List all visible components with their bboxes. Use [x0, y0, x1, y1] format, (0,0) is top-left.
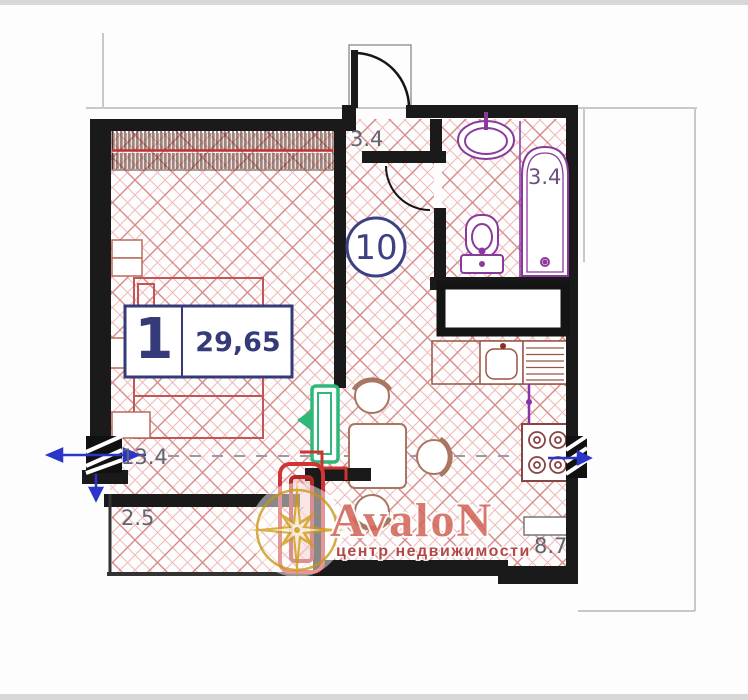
balcony-dim-label: 2.5: [121, 506, 154, 530]
page-top-border: [0, 0, 748, 5]
wall-bedroom-top: [100, 119, 346, 131]
watermark-tagline-text: центр недвижимости: [336, 543, 531, 560]
wall-kitchen-bottom-right: [498, 566, 578, 584]
vent-shaft-box: [441, 285, 565, 332]
watermark-brand-text: AvaloN: [330, 494, 493, 547]
wall-left-exterior: [90, 119, 111, 437]
wall-bath-left-upper: [430, 119, 442, 151]
wall-top-right: [406, 105, 578, 118]
bedroom-dim-label: 13.4: [121, 445, 168, 469]
wardrobe: [112, 128, 333, 170]
entrance-door-arc: [357, 53, 409, 107]
info-box: 1 29,65: [125, 306, 292, 377]
gas-valve: [526, 399, 532, 405]
wall-bath-stub: [362, 151, 446, 163]
floorplan-image: 3.4 3.4 13.4 2.5 8.7 10 1 29,65 AvaloN ц…: [0, 0, 748, 700]
hall-dim-label: 3.4: [350, 127, 383, 151]
area-text: 29,65: [195, 327, 280, 358]
entrance-door-leaf: [351, 50, 358, 108]
kitchen-dim-label: 8.7: [534, 534, 567, 558]
kitchen-faucet: [500, 343, 506, 349]
rooms-count-text: 1: [135, 307, 174, 372]
unit-number-badge: 10: [347, 218, 405, 276]
page-bottom-border: [0, 694, 748, 700]
wall-bedroom-kitchen: [334, 131, 346, 388]
unit-number-text: 10: [354, 228, 397, 268]
wall-balcony-door-stub: [305, 468, 371, 481]
bath-dim-label: 3.4: [528, 165, 561, 189]
floorplan-svg: 3.4 3.4 13.4 2.5 8.7 10 1 29,65 AvaloN ц…: [0, 0, 748, 700]
windowsill-cabinet: [524, 517, 568, 535]
wall-kitchen-bottom-left: [313, 560, 508, 576]
